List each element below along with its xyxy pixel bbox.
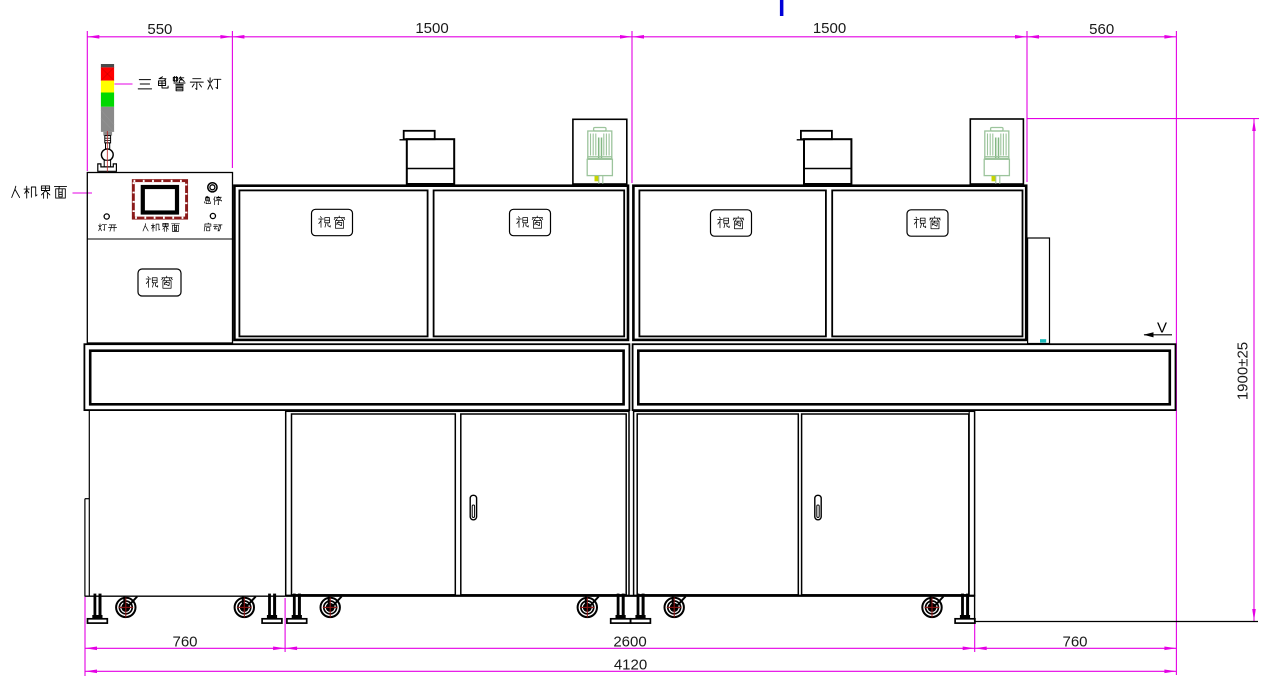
svg-text:1500: 1500 (813, 20, 846, 37)
svg-text:1500: 1500 (415, 20, 448, 37)
svg-text:760: 760 (1062, 634, 1087, 651)
svg-text:1900±25: 1900±25 (1234, 342, 1251, 400)
svg-text:560: 560 (1089, 21, 1114, 38)
svg-text:760: 760 (172, 634, 197, 651)
svg-text:4120: 4120 (614, 657, 647, 674)
svg-text:V: V (1157, 320, 1167, 337)
svg-text:2600: 2600 (613, 634, 646, 651)
svg-text:550: 550 (147, 21, 172, 38)
